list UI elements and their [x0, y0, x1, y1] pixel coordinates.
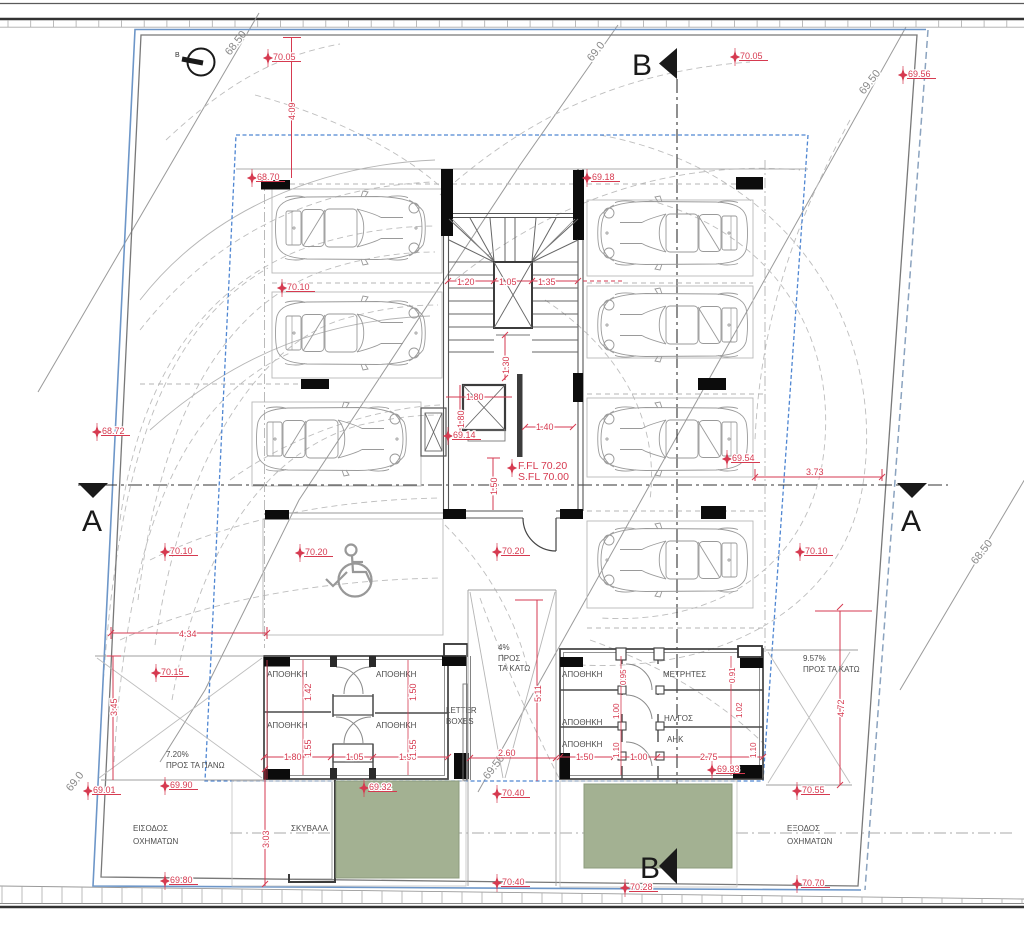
svg-text:69.80: 69.80	[170, 875, 193, 885]
svg-text:1.35: 1.35	[538, 277, 556, 287]
svg-text:ΤΑ ΚΑΤΩ: ΤΑ ΚΑΤΩ	[498, 664, 530, 673]
svg-text:0.95: 0.95	[619, 669, 628, 685]
svg-text:ΜΕΤΡΗΤΕΣ: ΜΕΤΡΗΤΕΣ	[663, 670, 706, 679]
svg-text:70.55: 70.55	[802, 785, 825, 795]
svg-text:70.28: 70.28	[630, 882, 653, 892]
svg-text:68.70: 68.70	[257, 172, 280, 182]
svg-text:70.20: 70.20	[502, 546, 525, 556]
svg-text:4%: 4%	[498, 643, 510, 652]
svg-text:ΑΠΟΘΗΚΗ: ΑΠΟΘΗΚΗ	[376, 721, 417, 730]
svg-text:LETTER: LETTER	[446, 706, 477, 715]
svg-text:ΠΡΟΣ ΤΑ ΚΑΤΩ: ΠΡΟΣ ΤΑ ΚΑΤΩ	[803, 665, 860, 674]
svg-text:1.10: 1.10	[612, 742, 621, 758]
svg-text:ΑΗΚ: ΑΗΚ	[667, 735, 684, 744]
svg-text:69.18: 69.18	[592, 172, 615, 182]
svg-text:ΠΡΟΣ: ΠΡΟΣ	[498, 654, 520, 663]
svg-text:B: B	[632, 49, 652, 82]
svg-text:ΠΡΟΣ ΤΑ ΠΑΝΩ: ΠΡΟΣ ΤΑ ΠΑΝΩ	[166, 761, 225, 770]
svg-text:1.42: 1.42	[303, 683, 313, 701]
svg-text:70.20: 70.20	[305, 547, 328, 557]
svg-text:1.50: 1.50	[408, 683, 418, 701]
svg-text:1.00: 1.00	[612, 703, 621, 719]
svg-text:1.55: 1.55	[303, 739, 313, 757]
svg-text:1.50: 1.50	[576, 752, 594, 762]
svg-text:69.54: 69.54	[732, 453, 755, 463]
svg-text:2.75: 2.75	[700, 752, 718, 762]
svg-text:A: A	[901, 505, 921, 538]
svg-text:69.83: 69.83	[717, 764, 740, 774]
svg-text:70.15: 70.15	[161, 667, 184, 677]
svg-text:1.80: 1.80	[284, 752, 302, 762]
svg-text:ΟΧΗΜΑΤΩΝ: ΟΧΗΜΑΤΩΝ	[787, 837, 832, 846]
svg-text:1.10: 1.10	[749, 742, 758, 758]
svg-text:1.50: 1.50	[489, 477, 499, 495]
svg-text:70.05: 70.05	[273, 52, 296, 62]
svg-text:ΑΠΟΘΗΚΗ: ΑΠΟΘΗΚΗ	[562, 670, 603, 679]
svg-text:1.05: 1.05	[499, 277, 517, 287]
svg-text:70.10: 70.10	[805, 546, 828, 556]
svg-text:7.20%: 7.20%	[166, 750, 189, 759]
svg-text:BOXES: BOXES	[446, 717, 474, 726]
svg-text:ΟΧΗΜΑΤΩΝ: ΟΧΗΜΑΤΩΝ	[133, 837, 178, 846]
svg-text:ΣΚΥΒΑΛΑ: ΣΚΥΒΑΛΑ	[291, 824, 329, 833]
svg-text:4.34: 4.34	[179, 629, 197, 639]
svg-text:B: B	[640, 852, 660, 885]
svg-text:3.03: 3.03	[261, 830, 271, 848]
svg-text:ΑΠΟΘΗΚΗ: ΑΠΟΘΗΚΗ	[267, 670, 308, 679]
svg-text:69.32: 69.32	[369, 782, 392, 792]
svg-text:69.14: 69.14	[453, 430, 476, 440]
svg-text:69.01: 69.01	[93, 785, 116, 795]
svg-text:A: A	[82, 505, 102, 538]
svg-text:1.40: 1.40	[536, 422, 554, 432]
svg-text:70.40: 70.40	[502, 877, 525, 887]
svg-text:70.10: 70.10	[287, 282, 310, 292]
svg-text:69.56: 69.56	[908, 69, 931, 79]
svg-text:ΑΠΟΘΗΚΗ: ΑΠΟΘΗΚΗ	[376, 670, 417, 679]
svg-text:S.FL 70.00: S.FL 70.00	[518, 471, 569, 483]
svg-text:B: B	[175, 52, 180, 59]
svg-text:4.72: 4.72	[836, 699, 846, 717]
svg-text:1.80: 1.80	[456, 410, 466, 428]
svg-text:4.09: 4.09	[287, 102, 297, 120]
svg-text:69.90: 69.90	[170, 780, 193, 790]
svg-text:1.20: 1.20	[457, 277, 475, 287]
svg-text:3.73: 3.73	[806, 467, 824, 477]
svg-text:70.40: 70.40	[502, 788, 525, 798]
svg-text:70.10: 70.10	[170, 546, 193, 556]
svg-text:70.05: 70.05	[740, 51, 763, 61]
svg-text:ΑΠΟΘΗΚΗ: ΑΠΟΘΗΚΗ	[562, 740, 603, 749]
svg-text:ΑΠΟΘΗΚΗ: ΑΠΟΘΗΚΗ	[562, 718, 603, 727]
svg-text:1.05: 1.05	[346, 752, 364, 762]
svg-text:68.72: 68.72	[102, 426, 125, 436]
svg-text:70.70: 70.70	[802, 878, 825, 888]
svg-text:ΕΙΣΟΔΟΣ: ΕΙΣΟΔΟΣ	[133, 824, 168, 833]
svg-text:1.30: 1.30	[501, 356, 511, 374]
svg-text:1.02: 1.02	[735, 702, 744, 718]
svg-text:2.60: 2.60	[498, 748, 516, 758]
svg-text:1.00: 1.00	[630, 752, 648, 762]
svg-text:1.80: 1.80	[466, 392, 484, 402]
svg-text:5.11: 5.11	[533, 685, 543, 702]
svg-text:ΗΛ/ΓΟΣ: ΗΛ/ΓΟΣ	[664, 714, 693, 723]
svg-text:ΑΠΟΘΗΚΗ: ΑΠΟΘΗΚΗ	[267, 721, 308, 730]
svg-text:0.91: 0.91	[728, 667, 737, 683]
svg-text:1.55: 1.55	[408, 739, 418, 757]
svg-text:3.45: 3.45	[109, 698, 119, 716]
svg-text:ΕΞΟΔΟΣ: ΕΞΟΔΟΣ	[787, 824, 820, 833]
svg-text:9.57%: 9.57%	[803, 654, 826, 663]
